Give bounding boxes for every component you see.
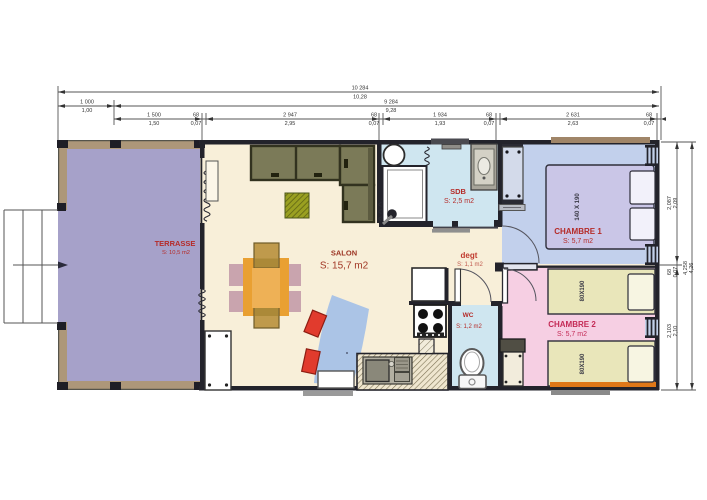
svg-text:4,26: 4,26 xyxy=(689,263,695,274)
svg-text:2,63: 2,63 xyxy=(568,121,579,127)
svg-text:68: 68 xyxy=(646,113,652,119)
svg-text:9,28: 9,28 xyxy=(386,108,397,114)
svg-text:80X190: 80X190 xyxy=(580,353,586,374)
svg-text:1,00: 1,00 xyxy=(82,108,93,114)
svg-text:1 000: 1 000 xyxy=(80,100,94,106)
svg-text:CHAMBRE 1: CHAMBRE 1 xyxy=(554,227,602,236)
svg-text:1,50: 1,50 xyxy=(149,121,160,127)
svg-text:TERRASSE: TERRASSE xyxy=(155,239,196,248)
svg-text:2,10: 2,10 xyxy=(673,326,679,337)
svg-text:S: 5,7 m2: S: 5,7 m2 xyxy=(563,238,593,245)
svg-text:0,07: 0,07 xyxy=(484,121,495,127)
svg-text:10 284: 10 284 xyxy=(352,86,369,92)
svg-text:0,07: 0,07 xyxy=(191,121,202,127)
svg-text:S: 2,5 m2: S: 2,5 m2 xyxy=(444,198,474,205)
svg-text:S: 15,7 m2: S: 15,7 m2 xyxy=(320,261,369,272)
svg-text:WC: WC xyxy=(463,312,474,319)
svg-text:2,95: 2,95 xyxy=(285,121,296,127)
svg-text:68: 68 xyxy=(486,113,492,119)
svg-text:degt: degt xyxy=(461,251,478,260)
svg-text:10,28: 10,28 xyxy=(353,95,367,101)
svg-text:CHAMBRE 2: CHAMBRE 2 xyxy=(548,320,596,329)
svg-text:SDB: SDB xyxy=(450,187,466,196)
svg-text:0,07: 0,07 xyxy=(369,121,380,127)
svg-text:S: 1,1 m2: S: 1,1 m2 xyxy=(457,262,483,268)
svg-text:80X190: 80X190 xyxy=(580,280,586,301)
svg-text:0,07: 0,07 xyxy=(673,267,679,278)
svg-text:1,93: 1,93 xyxy=(435,121,446,127)
svg-text:2 631: 2 631 xyxy=(566,113,580,119)
svg-text:2 947: 2 947 xyxy=(283,113,297,119)
svg-text:68: 68 xyxy=(371,113,377,119)
svg-text:1 500: 1 500 xyxy=(147,113,161,119)
svg-text:S: 5,7 m2: S: 5,7 m2 xyxy=(557,331,587,338)
svg-text:S: 1,2 m2: S: 1,2 m2 xyxy=(456,324,482,330)
svg-text:9 284: 9 284 xyxy=(384,100,398,106)
svg-text:1 934: 1 934 xyxy=(433,113,447,119)
svg-text:68: 68 xyxy=(193,113,199,119)
svg-text:140 X 190: 140 X 190 xyxy=(575,193,581,221)
svg-text:SALON: SALON xyxy=(331,249,357,258)
svg-text:2,09: 2,09 xyxy=(673,198,679,209)
svg-text:0,07: 0,07 xyxy=(644,121,655,127)
svg-text:S: 10,5 m2: S: 10,5 m2 xyxy=(162,250,190,256)
